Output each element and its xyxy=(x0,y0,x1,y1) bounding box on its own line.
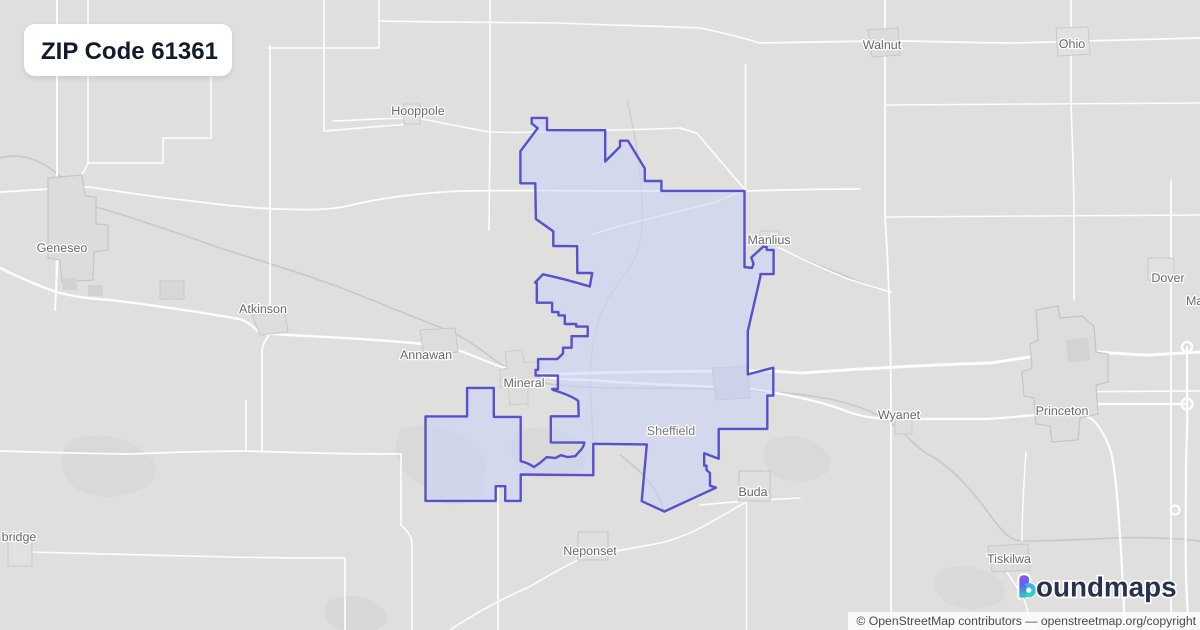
svg-text:Annawan: Annawan xyxy=(400,348,452,362)
svg-text:Ohio: Ohio xyxy=(1059,37,1085,51)
svg-text:Mineral: Mineral xyxy=(504,376,545,390)
svg-text:Ma: Ma xyxy=(1186,294,1200,308)
svg-text:Walnut: Walnut xyxy=(863,38,902,52)
svg-text:Neponset: Neponset xyxy=(563,544,617,558)
svg-text:Buda: Buda xyxy=(738,485,767,499)
svg-text:oundmaps: oundmaps xyxy=(1036,572,1177,603)
svg-text:Hooppole: Hooppole xyxy=(391,104,445,118)
svg-text:Wyanet: Wyanet xyxy=(878,408,921,422)
svg-text:bridge: bridge xyxy=(2,530,37,544)
svg-text:Tiskilwa: Tiskilwa xyxy=(987,552,1031,566)
svg-text:Geneseo: Geneseo xyxy=(37,241,88,255)
svg-text:Manlius: Manlius xyxy=(747,233,790,247)
svg-text:Princeton: Princeton xyxy=(1036,404,1089,418)
svg-text:Atkinson: Atkinson xyxy=(239,302,287,316)
svg-text:Sheffield: Sheffield xyxy=(647,424,695,438)
svg-text:Dover: Dover xyxy=(1151,271,1184,285)
